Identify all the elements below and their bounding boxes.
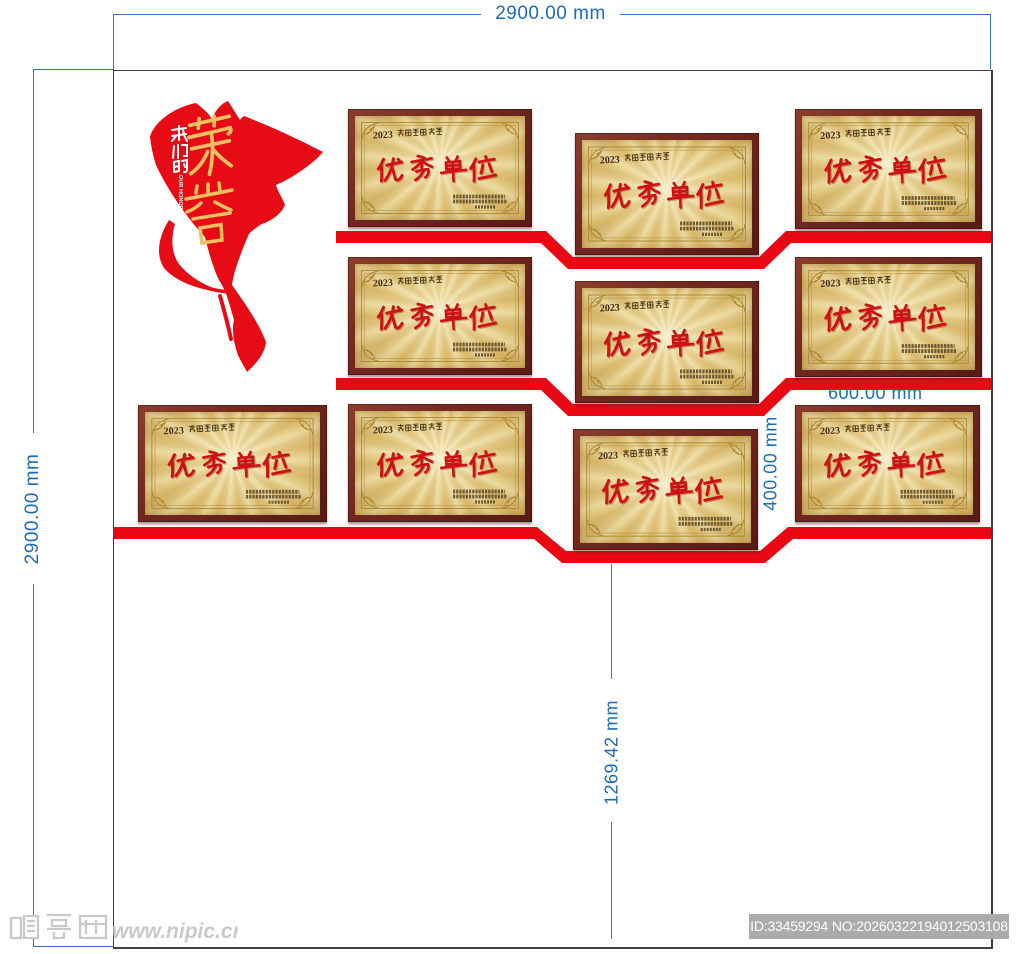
svg-text:OUR HONOR: OUR HONOR bbox=[177, 175, 183, 210]
svg-text:www.nipic.cn: www.nipic.cn bbox=[112, 920, 238, 943]
